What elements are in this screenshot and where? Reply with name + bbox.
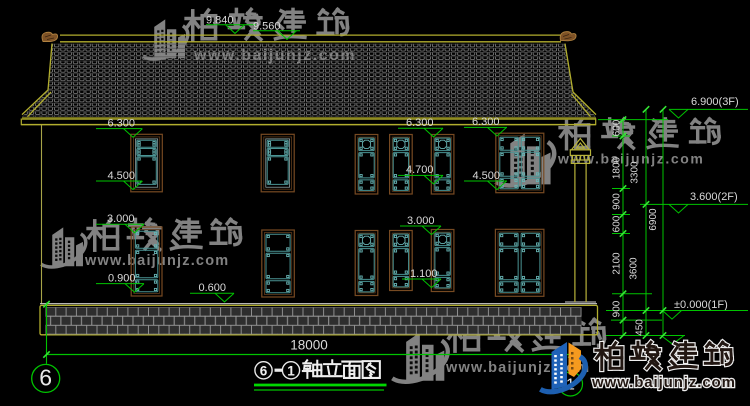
svg-text:1.100: 1.100 [410, 268, 438, 280]
svg-text:6.300: 6.300 [472, 116, 500, 128]
svg-text:0.900: 0.900 [108, 272, 136, 284]
svg-text:3.000: 3.000 [407, 215, 435, 227]
svg-text:2100: 2100 [612, 252, 623, 275]
svg-text:6900: 6900 [648, 208, 659, 231]
svg-text:3300: 3300 [630, 161, 641, 184]
svg-text:450: 450 [635, 319, 646, 336]
svg-text:4.500: 4.500 [108, 170, 136, 182]
svg-text:6: 6 [39, 365, 52, 391]
svg-text:www.baijunjz.com: www.baijunjz.com [84, 253, 229, 269]
svg-text:6.300: 6.300 [406, 117, 434, 129]
svg-text:0.600: 0.600 [199, 282, 227, 294]
svg-text:3600: 3600 [629, 257, 640, 280]
svg-text:600: 600 [612, 215, 623, 232]
svg-text:6.300: 6.300 [108, 117, 136, 129]
svg-text:3.000: 3.000 [107, 213, 135, 225]
svg-text:4.700: 4.700 [406, 164, 434, 176]
svg-text:1800: 1800 [612, 156, 623, 179]
svg-text:3.600(2F): 3.600(2F) [690, 191, 738, 203]
svg-text:18000: 18000 [290, 338, 328, 353]
svg-text:6.900(3F): 6.900(3F) [691, 96, 739, 108]
svg-text:6: 6 [260, 363, 268, 378]
svg-text:1: 1 [287, 363, 295, 378]
svg-text:600: 600 [612, 119, 623, 136]
svg-text:±0.000(1F): ±0.000(1F) [674, 299, 728, 311]
svg-text:900: 900 [612, 193, 623, 210]
svg-text:900: 900 [612, 300, 623, 317]
svg-text:4.500: 4.500 [473, 170, 501, 182]
svg-text:www.baijunjz.com: www.baijunjz.com [591, 374, 736, 391]
